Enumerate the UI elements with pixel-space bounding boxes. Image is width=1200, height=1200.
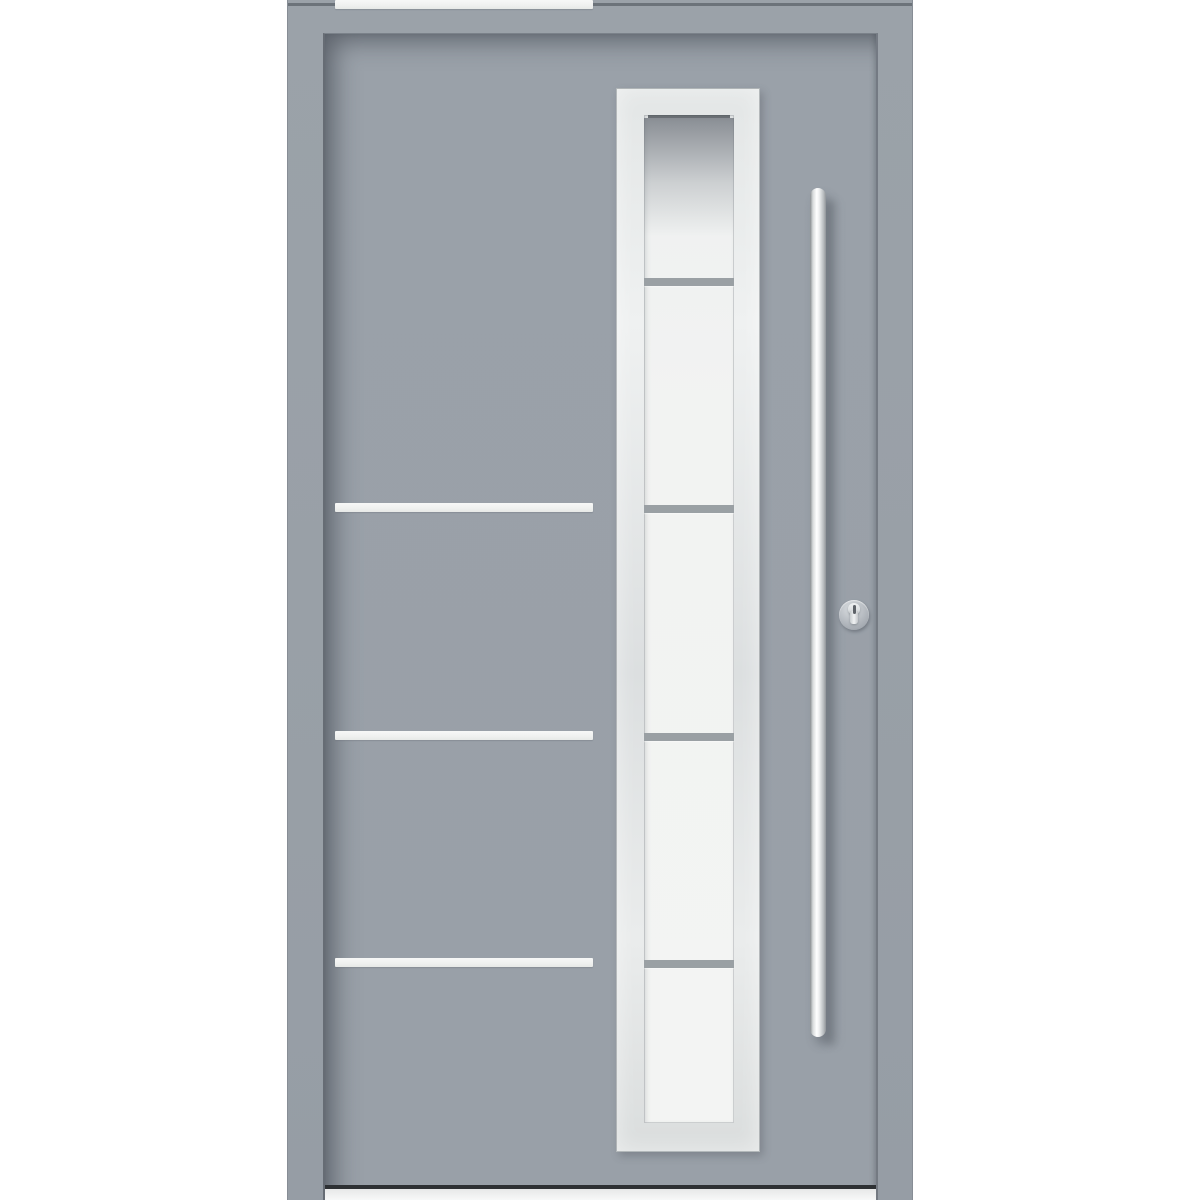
- glass-divider: [644, 278, 734, 286]
- glass-reflection: [644, 118, 734, 236]
- glass: [644, 115, 734, 1123]
- decor-strip: [335, 731, 593, 740]
- handle-shadow: [826, 200, 840, 1046]
- door-leaf: [323, 33, 878, 1200]
- decor-strip: [335, 958, 593, 967]
- decor-strip: [335, 0, 593, 9]
- glass-divider: [644, 960, 734, 968]
- glass-divider: [644, 505, 734, 513]
- glass-divider: [644, 733, 734, 741]
- product-photo: [0, 0, 1200, 1200]
- door-handle-bar: [810, 188, 826, 1037]
- glazing-panel: [616, 88, 760, 1152]
- decor-strip: [335, 503, 593, 512]
- threshold: [325, 1185, 876, 1200]
- lock-escutcheon: [839, 600, 869, 630]
- keyhole-icon: [853, 605, 856, 614]
